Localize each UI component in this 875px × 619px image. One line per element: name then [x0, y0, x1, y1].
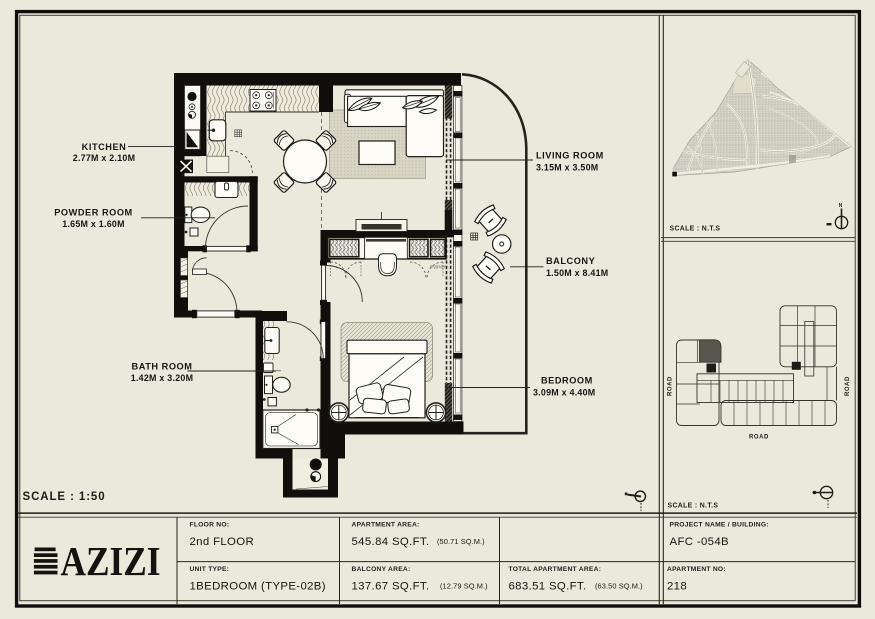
- svg-text:545.84 SQ.FT.: 545.84 SQ.FT.: [352, 536, 430, 548]
- svg-text:POWDER ROOM: POWDER ROOM: [54, 208, 133, 218]
- svg-text:SCALE : N.T.S: SCALE : N.T.S: [668, 503, 719, 510]
- svg-text:(63.50 SQ.M.): (63.50 SQ.M.): [595, 582, 643, 591]
- svg-text:AFC -054B: AFC -054B: [670, 536, 730, 548]
- svg-text:LIVING ROOM: LIVING ROOM: [536, 151, 604, 161]
- svg-text:BEDROOM: BEDROOM: [541, 376, 593, 386]
- svg-text:UNIT TYPE:: UNIT TYPE:: [190, 566, 230, 573]
- svg-text:683.51 SQ.FT.: 683.51 SQ.FT.: [509, 581, 587, 593]
- svg-text:KITCHEN: KITCHEN: [82, 142, 127, 152]
- svg-text:1.65M x 1.60M: 1.65M x 1.60M: [62, 219, 124, 229]
- svg-text:ROAD: ROAD: [749, 435, 769, 441]
- svg-text:ROAD: ROAD: [668, 376, 674, 396]
- svg-text:218: 218: [667, 581, 687, 593]
- svg-text:APARTMENT AREA:: APARTMENT AREA:: [352, 522, 420, 529]
- svg-text:luggage: luggage: [430, 264, 446, 269]
- svg-text:APARTMENT NO:: APARTMENT NO:: [667, 566, 726, 573]
- svg-text:BALCONY AREA:: BALCONY AREA:: [352, 566, 411, 573]
- svg-text:(12.79 SQ.M.): (12.79 SQ.M.): [440, 582, 488, 591]
- svg-text:2.77M x 2.10M: 2.77M x 2.10M: [73, 153, 135, 163]
- svg-text:2nd FLOOR: 2nd FLOOR: [190, 536, 255, 548]
- svg-text:1BEDROOM (TYPE-02B): 1BEDROOM (TYPE-02B): [190, 581, 326, 593]
- svg-text:SCALE : 1:50: SCALE : 1:50: [23, 491, 106, 503]
- svg-text:1.42M x 3.20M: 1.42M x 3.20M: [131, 373, 193, 383]
- svg-text:SCALE : N.T.S: SCALE : N.T.S: [670, 226, 721, 233]
- svg-text:AZIZI: AZIZI: [61, 538, 161, 584]
- svg-text:BALCONY: BALCONY: [546, 256, 595, 266]
- svg-text:N: N: [839, 203, 843, 209]
- svg-text:(50.71 SQ.M.): (50.71 SQ.M.): [437, 537, 485, 546]
- svg-text:ROAD: ROAD: [845, 376, 851, 396]
- svg-text:TOTAL APARTMENT AREA:: TOTAL APARTMENT AREA:: [509, 566, 602, 573]
- svg-text:PROJECT NAME / BUILDING:: PROJECT NAME / BUILDING:: [670, 522, 769, 529]
- svg-text:3.15M x 3.50M: 3.15M x 3.50M: [536, 163, 598, 173]
- svg-text:BATH ROOM: BATH ROOM: [132, 362, 193, 372]
- svg-text:3.09M x 4.40M: 3.09M x 4.40M: [533, 388, 595, 398]
- svg-text:137.67 SQ.FT.: 137.67 SQ.FT.: [352, 581, 430, 593]
- svg-text:FLOOR NO:: FLOOR NO:: [190, 522, 230, 529]
- svg-text:1.50M x 8.41M: 1.50M x 8.41M: [546, 268, 608, 278]
